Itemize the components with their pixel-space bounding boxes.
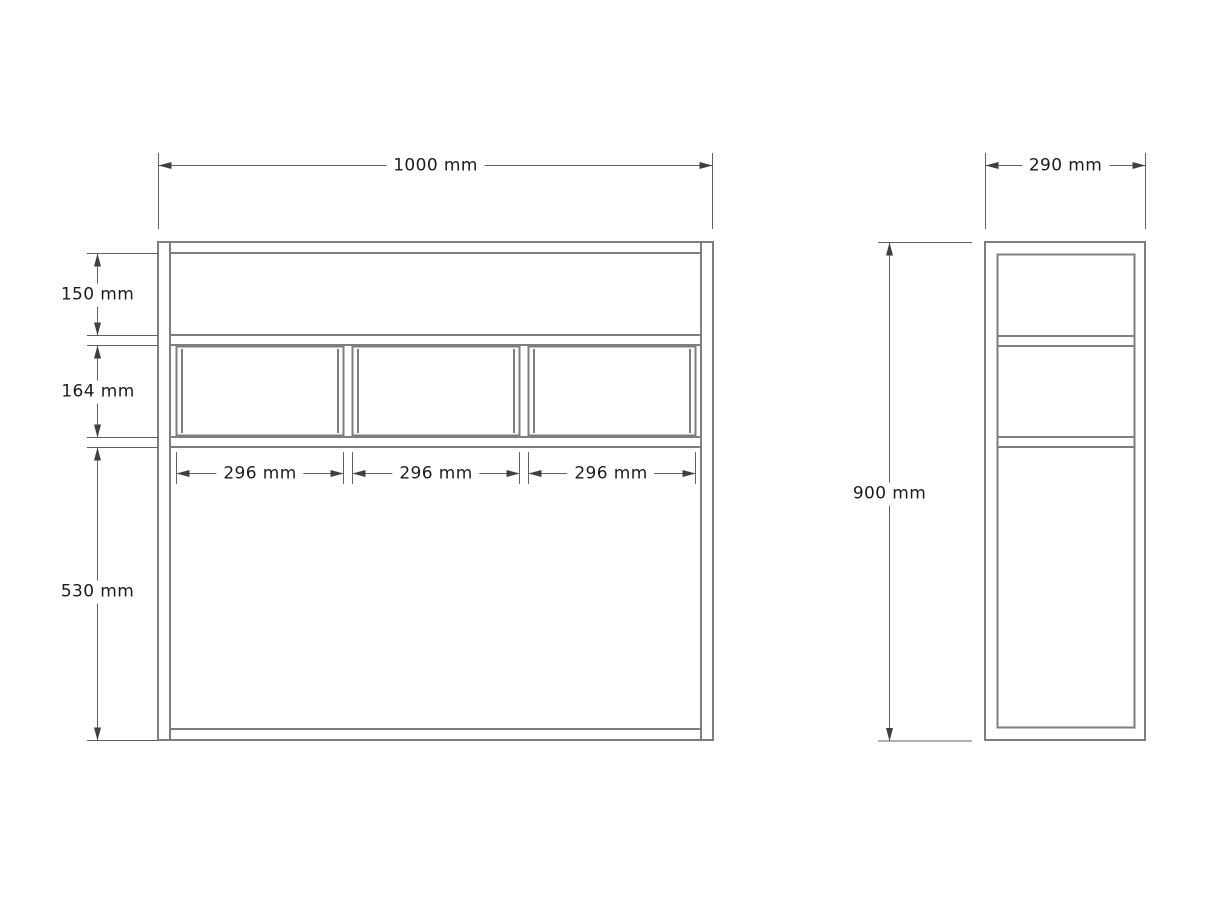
- arrow-right-icon: [683, 470, 696, 477]
- arrow-down-icon: [886, 728, 893, 741]
- arrow-down-icon: [94, 425, 101, 438]
- front-outer-frame: [158, 242, 713, 740]
- arrow-right-icon: [331, 470, 344, 477]
- dim-label-drawer-2-width: 296 mm: [392, 463, 479, 486]
- dim-label-front-width: 1000 mm: [386, 155, 485, 178]
- arrow-right-icon: [1133, 162, 1146, 169]
- drawing-canvas: [0, 0, 1214, 910]
- arrow-right-icon: [700, 162, 713, 169]
- dim-label-top-section-height: 150 mm: [54, 284, 141, 307]
- dimension-arrows: [94, 162, 1146, 741]
- drawer-2-front: [353, 347, 520, 436]
- drawer-2: [353, 347, 520, 436]
- arrow-right-icon: [507, 470, 520, 477]
- front-view: [158, 242, 713, 740]
- dim-label-side-height: 900 mm: [846, 483, 933, 506]
- arrow-left-icon: [986, 162, 999, 169]
- drawer-1-front: [177, 347, 344, 436]
- drawer-3-front: [529, 347, 696, 436]
- arrow-left-icon: [529, 470, 542, 477]
- dim-label-side-depth: 290 mm: [1022, 155, 1109, 178]
- arrow-up-icon: [94, 346, 101, 359]
- drawer-1: [177, 347, 344, 436]
- dim-label-drawer-3-width: 296 mm: [567, 463, 654, 486]
- technical-drawing-page: 1000 mm 290 mm 150 mm 164 mm 530 mm 296 …: [0, 0, 1214, 910]
- arrow-down-icon: [94, 728, 101, 741]
- arrow-up-icon: [886, 243, 893, 256]
- dim-label-drawer-1-width: 296 mm: [216, 463, 303, 486]
- arrow-down-icon: [94, 323, 101, 336]
- side-view: [985, 242, 1145, 740]
- side-inner-frame: [998, 255, 1135, 728]
- dim-label-bottom-section-height: 530 mm: [54, 581, 141, 604]
- arrow-left-icon: [353, 470, 366, 477]
- dim-label-drawer-section-height: 164 mm: [54, 381, 141, 404]
- arrow-left-icon: [177, 470, 190, 477]
- drawer-3: [529, 347, 696, 436]
- arrow-left-icon: [159, 162, 172, 169]
- side-outer-frame: [985, 242, 1145, 740]
- arrow-up-icon: [94, 254, 101, 267]
- arrow-up-icon: [94, 448, 101, 461]
